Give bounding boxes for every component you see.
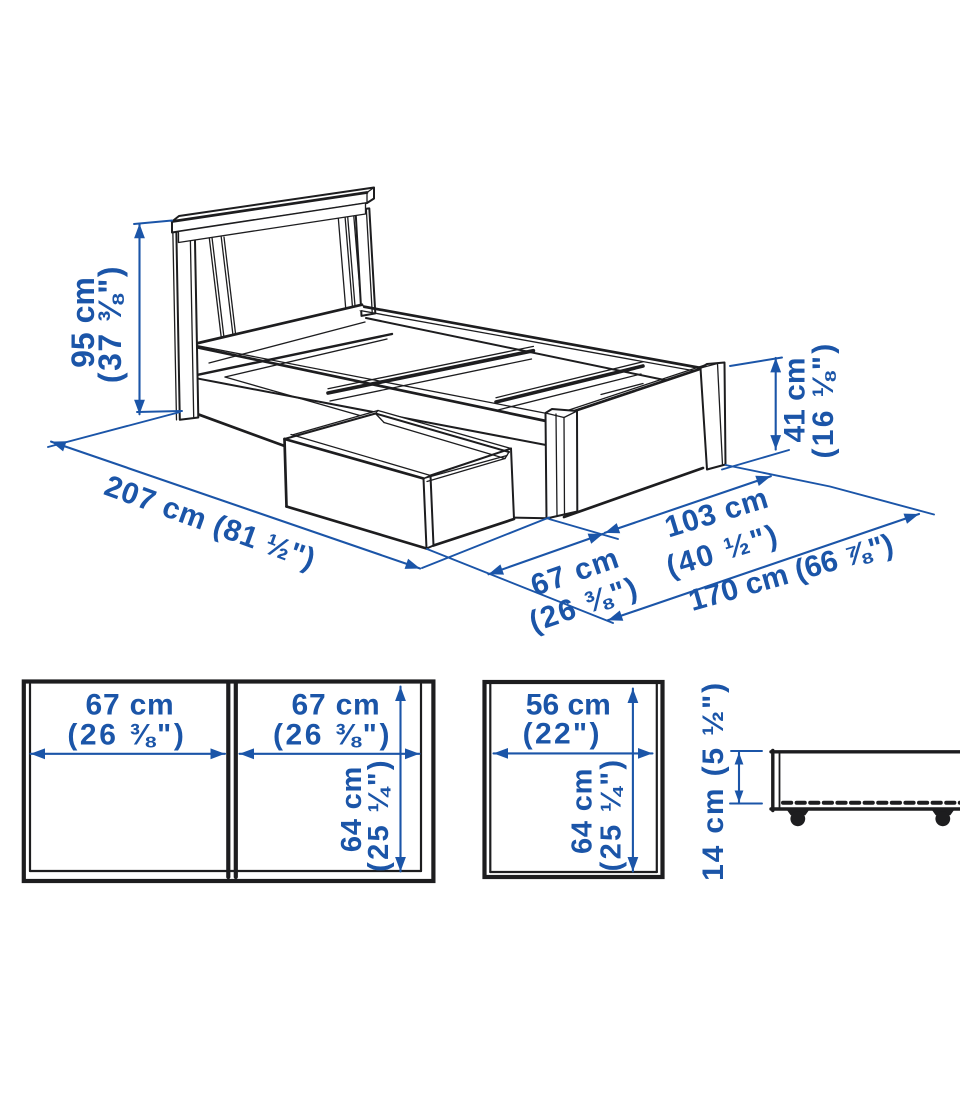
svg-text:14 cm (5 ½"): 14 cm (5 ½") — [697, 681, 730, 881]
svg-text:(22"): (22") — [523, 718, 602, 751]
svg-text:(25 ¼"): (25 ¼") — [595, 758, 627, 872]
svg-text:(26 ⅜"): (26 ⅜") — [273, 719, 392, 752]
svg-text:(37 ⅜"): (37 ⅜") — [92, 265, 128, 383]
svg-text:67 cm: 67 cm — [85, 689, 174, 722]
svg-text:67 cm: 67 cm — [291, 689, 380, 722]
svg-text:(26 ⅜"): (26 ⅜") — [67, 719, 186, 752]
svg-text:(16 ⅛"): (16 ⅛") — [807, 341, 840, 458]
svg-text:(25 ¼"): (25 ¼") — [363, 758, 395, 872]
svg-text:64 cm: 64 cm — [567, 768, 599, 854]
